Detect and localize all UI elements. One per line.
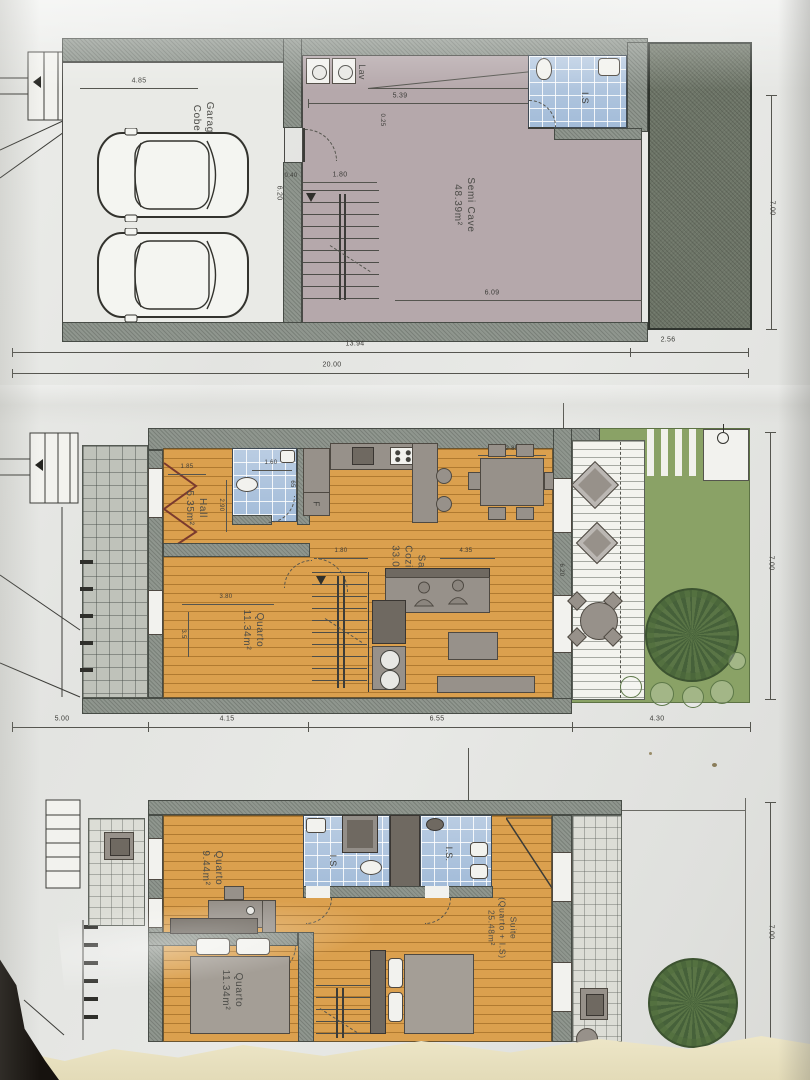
- tree-icon: [648, 958, 738, 1048]
- suite-label: Suite (Quarto + I.S) 25.48m²: [485, 897, 518, 959]
- sink-icon: [306, 818, 326, 833]
- wall-top: [148, 800, 622, 815]
- paper-speck: [649, 752, 652, 755]
- dim-line: [770, 802, 771, 1040]
- wall-bath-bottom: [303, 886, 493, 898]
- wardrobe: [390, 815, 420, 887]
- window: [148, 838, 163, 880]
- window: [552, 962, 572, 1012]
- window: [552, 852, 572, 902]
- quarto1-label: Quarto 9.44m²: [199, 850, 225, 885]
- paper-speck: [712, 763, 717, 767]
- pillow: [236, 938, 270, 955]
- balcony-planter: [580, 988, 608, 1020]
- headboard: [170, 918, 258, 934]
- suite-bed: [404, 954, 474, 1034]
- pillow: [196, 938, 230, 955]
- desk-chair: [224, 886, 244, 900]
- bath-label: I.S.: [328, 855, 338, 870]
- pillow: [388, 992, 403, 1022]
- plan-first-floor: Quarto 9.44m² I.S. I.S. Suite: [0, 0, 810, 1080]
- dim-label: 7.00: [768, 925, 775, 940]
- wardrobe: [370, 950, 386, 1034]
- door-gap: [425, 886, 449, 898]
- bath-label: I.S.: [444, 847, 454, 862]
- quarto2-label: Quarto 11.34m²: [219, 970, 245, 1011]
- stair-rail: [336, 988, 338, 1038]
- pillow: [388, 958, 403, 988]
- sink-icon: [470, 842, 488, 857]
- stair-rail: [342, 988, 344, 1038]
- lot-line: [745, 798, 746, 1042]
- wall-quarto2-right: [298, 932, 314, 1042]
- balcony-pot-icon: [576, 1028, 598, 1050]
- dim-tick: [765, 802, 776, 803]
- door-gap: [306, 886, 330, 898]
- sink-icon: [470, 864, 488, 879]
- toilet-icon: [360, 860, 382, 875]
- terrace-planter: [104, 832, 134, 860]
- lot-line: [622, 810, 745, 811]
- stair-void: [506, 815, 552, 891]
- toilet-icon: [426, 818, 444, 831]
- desk-lamp-icon: [246, 906, 255, 915]
- window: [148, 898, 163, 928]
- shower-icon: [342, 815, 378, 853]
- floor-plans-photo: 4.85 Garagem Coberta 6.20: [0, 0, 810, 1080]
- lot-line: [468, 748, 469, 800]
